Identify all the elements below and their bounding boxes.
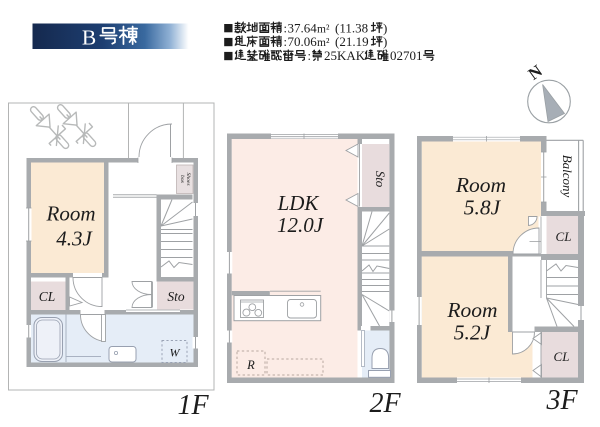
svg-text:R: R xyxy=(246,358,255,372)
svg-text:CL: CL xyxy=(556,229,572,244)
svg-text:(11.38: (11.38 xyxy=(335,20,368,35)
svg-text:25KAK: 25KAK xyxy=(324,48,366,63)
svg-text:3F: 3F xyxy=(545,385,578,416)
svg-text:CL: CL xyxy=(39,289,56,304)
svg-text:(21.19: (21.19 xyxy=(335,34,369,49)
svg-text:02701: 02701 xyxy=(390,48,423,63)
svg-text:5.8J: 5.8J xyxy=(464,196,502,220)
svg-text:70.06: 70.06 xyxy=(288,34,318,49)
svg-text:Sto: Sto xyxy=(373,171,388,188)
svg-text::: : xyxy=(284,35,287,49)
svg-text:4.3J: 4.3J xyxy=(56,227,93,251)
svg-text:5.2J: 5.2J xyxy=(454,321,492,345)
svg-text:2F: 2F xyxy=(369,388,401,419)
svg-text:CL: CL xyxy=(554,349,570,364)
svg-text::: : xyxy=(284,21,287,35)
svg-text:Sto: Sto xyxy=(167,289,185,304)
svg-text:Room: Room xyxy=(46,202,96,226)
svg-text:1F: 1F xyxy=(177,390,209,421)
svg-text:12.0J: 12.0J xyxy=(277,213,325,237)
svg-text:37.64: 37.64 xyxy=(288,20,318,35)
svg-text:m²: m² xyxy=(317,23,330,35)
svg-text:B: B xyxy=(82,26,96,50)
svg-text:W: W xyxy=(170,346,181,360)
svg-text:Balcony: Balcony xyxy=(560,155,575,198)
svg-text:LDK: LDK xyxy=(277,191,320,215)
svg-text:Room: Room xyxy=(446,298,497,322)
svg-text::: : xyxy=(308,49,311,63)
svg-text:): ) xyxy=(383,20,387,35)
svg-text:Room: Room xyxy=(455,173,506,197)
svg-text:): ) xyxy=(383,34,387,49)
